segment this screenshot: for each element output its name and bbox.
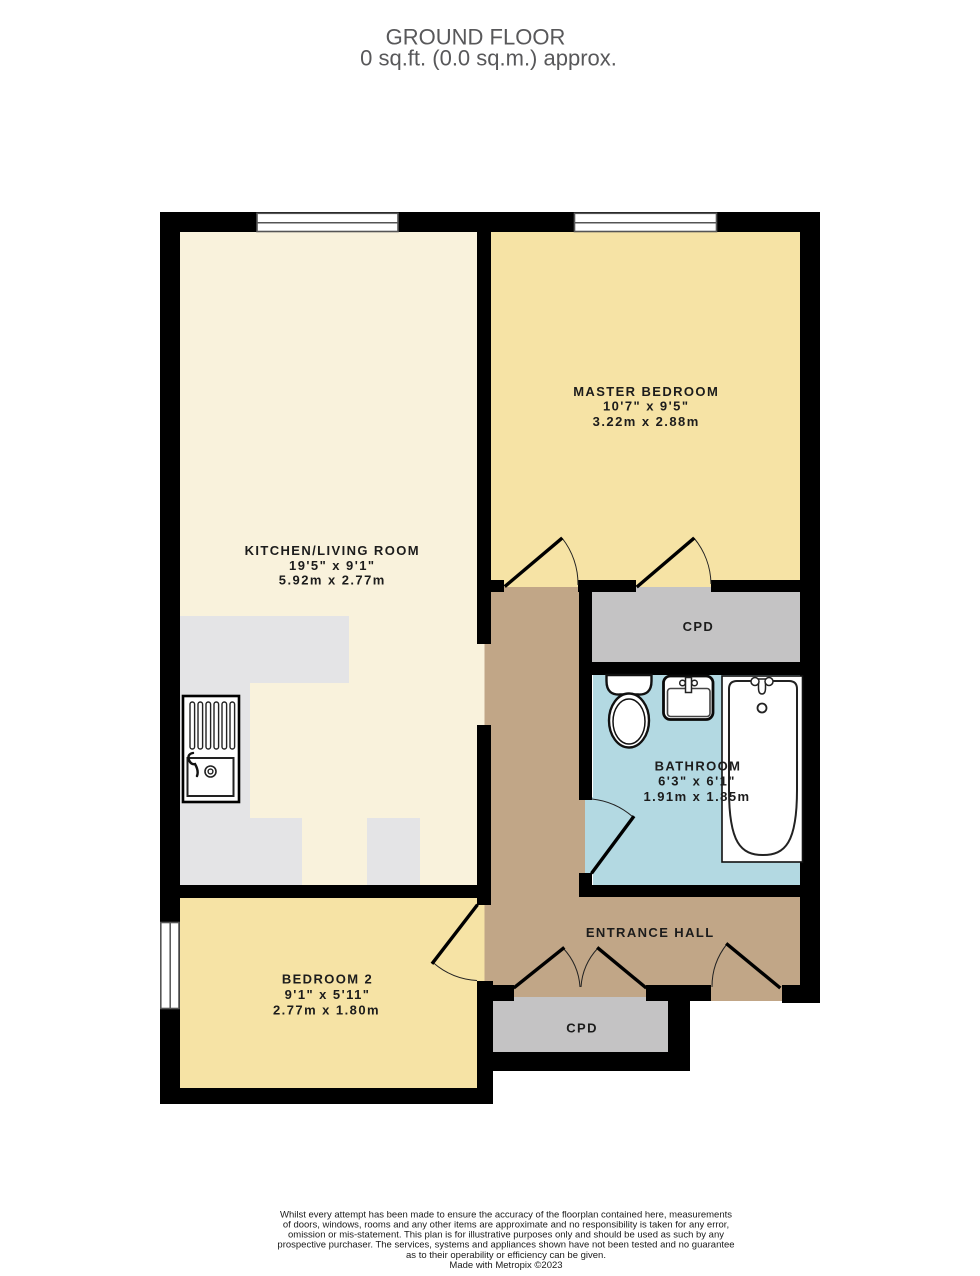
svg-text:BATHROOM: BATHROOM — [655, 758, 742, 773]
svg-text:Made with Metropix ©2023: Made with Metropix ©2023 — [449, 1260, 562, 1271]
svg-text:3.22m x 2.88m: 3.22m x 2.88m — [593, 414, 700, 429]
svg-text:6'3" x 6'1": 6'3" x 6'1" — [658, 774, 736, 789]
svg-text:0 sq.ft. (0.0 sq.m.) approx.: 0 sq.ft. (0.0 sq.m.) approx. — [360, 46, 617, 71]
svg-text:MASTER BEDROOM: MASTER BEDROOM — [573, 384, 719, 399]
svg-text:10'7" x 9'5": 10'7" x 9'5" — [603, 399, 690, 414]
svg-text:ENTRANCE HALL: ENTRANCE HALL — [586, 925, 715, 940]
svg-text:1.91m x 1.85m: 1.91m x 1.85m — [643, 789, 750, 804]
svg-text:KITCHEN/LIVING ROOM: KITCHEN/LIVING ROOM — [245, 543, 420, 558]
svg-text:CPD: CPD — [683, 619, 715, 634]
svg-text:19'5" x 9'1": 19'5" x 9'1" — [289, 558, 376, 573]
svg-text:2.77m x 1.80m: 2.77m x 1.80m — [273, 1002, 380, 1017]
svg-text:9'1" x 5'11": 9'1" x 5'11" — [285, 987, 371, 1002]
svg-text:BEDROOM 2: BEDROOM 2 — [282, 971, 373, 986]
svg-text:CPD: CPD — [566, 1021, 598, 1036]
svg-text:5.92m x 2.77m: 5.92m x 2.77m — [279, 573, 386, 588]
